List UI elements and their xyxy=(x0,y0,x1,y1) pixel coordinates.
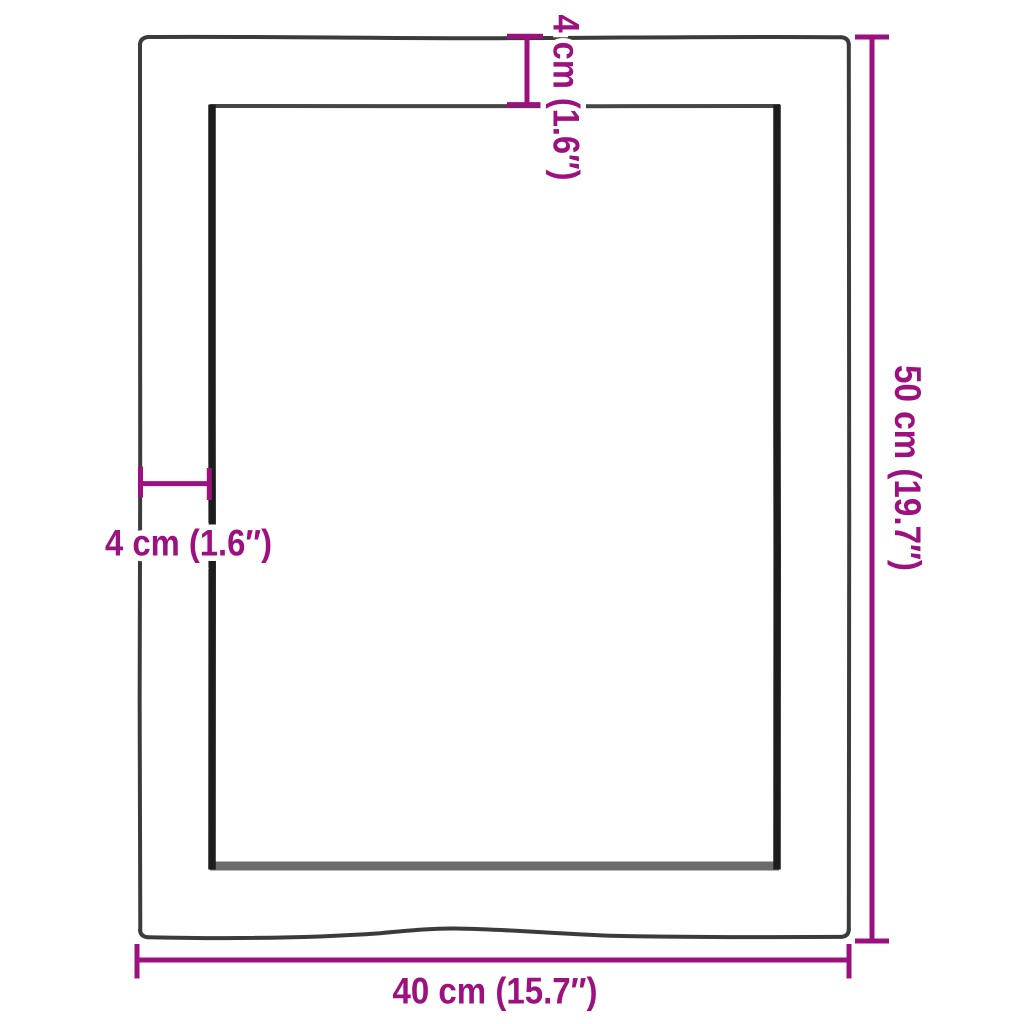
svg-text:4 cm (1.6″): 4 cm (1.6″) xyxy=(546,15,587,181)
svg-text:40 cm (15.7″): 40 cm (15.7″) xyxy=(393,971,598,1012)
svg-text:4 cm (1.6″): 4 cm (1.6″) xyxy=(105,523,272,564)
svg-text:50 cm (19.7″): 50 cm (19.7″) xyxy=(887,365,928,571)
